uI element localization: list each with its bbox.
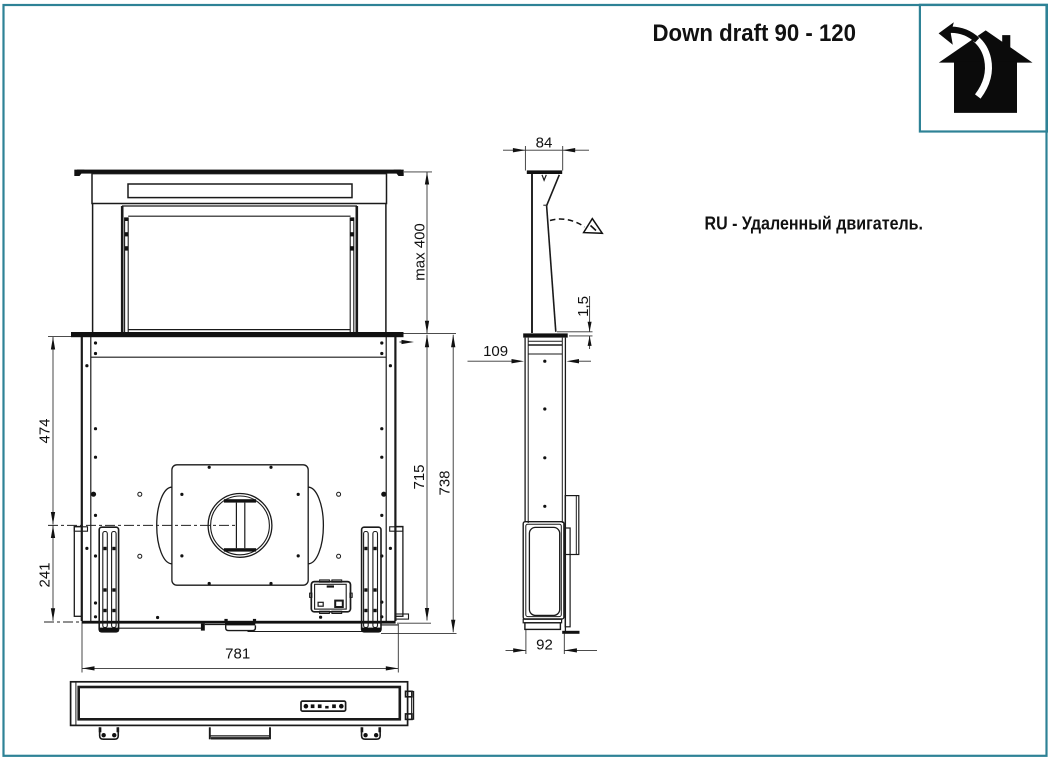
svg-text:RU - Удаленный двигатель.: RU - Удаленный двигатель. [705, 214, 924, 234]
svg-text:max 400: max 400 [412, 223, 429, 281]
svg-text:109: 109 [483, 343, 508, 360]
svg-text:715: 715 [411, 464, 428, 489]
svg-text:241: 241 [36, 562, 53, 587]
svg-text:474: 474 [36, 418, 53, 443]
svg-text:84: 84 [536, 134, 553, 151]
svg-text:738: 738 [436, 470, 453, 495]
svg-text:1,5: 1,5 [575, 296, 592, 317]
svg-text:781: 781 [225, 646, 250, 663]
svg-text:92: 92 [536, 636, 553, 653]
svg-text:Down draft 90 - 120: Down draft 90 - 120 [653, 20, 857, 47]
